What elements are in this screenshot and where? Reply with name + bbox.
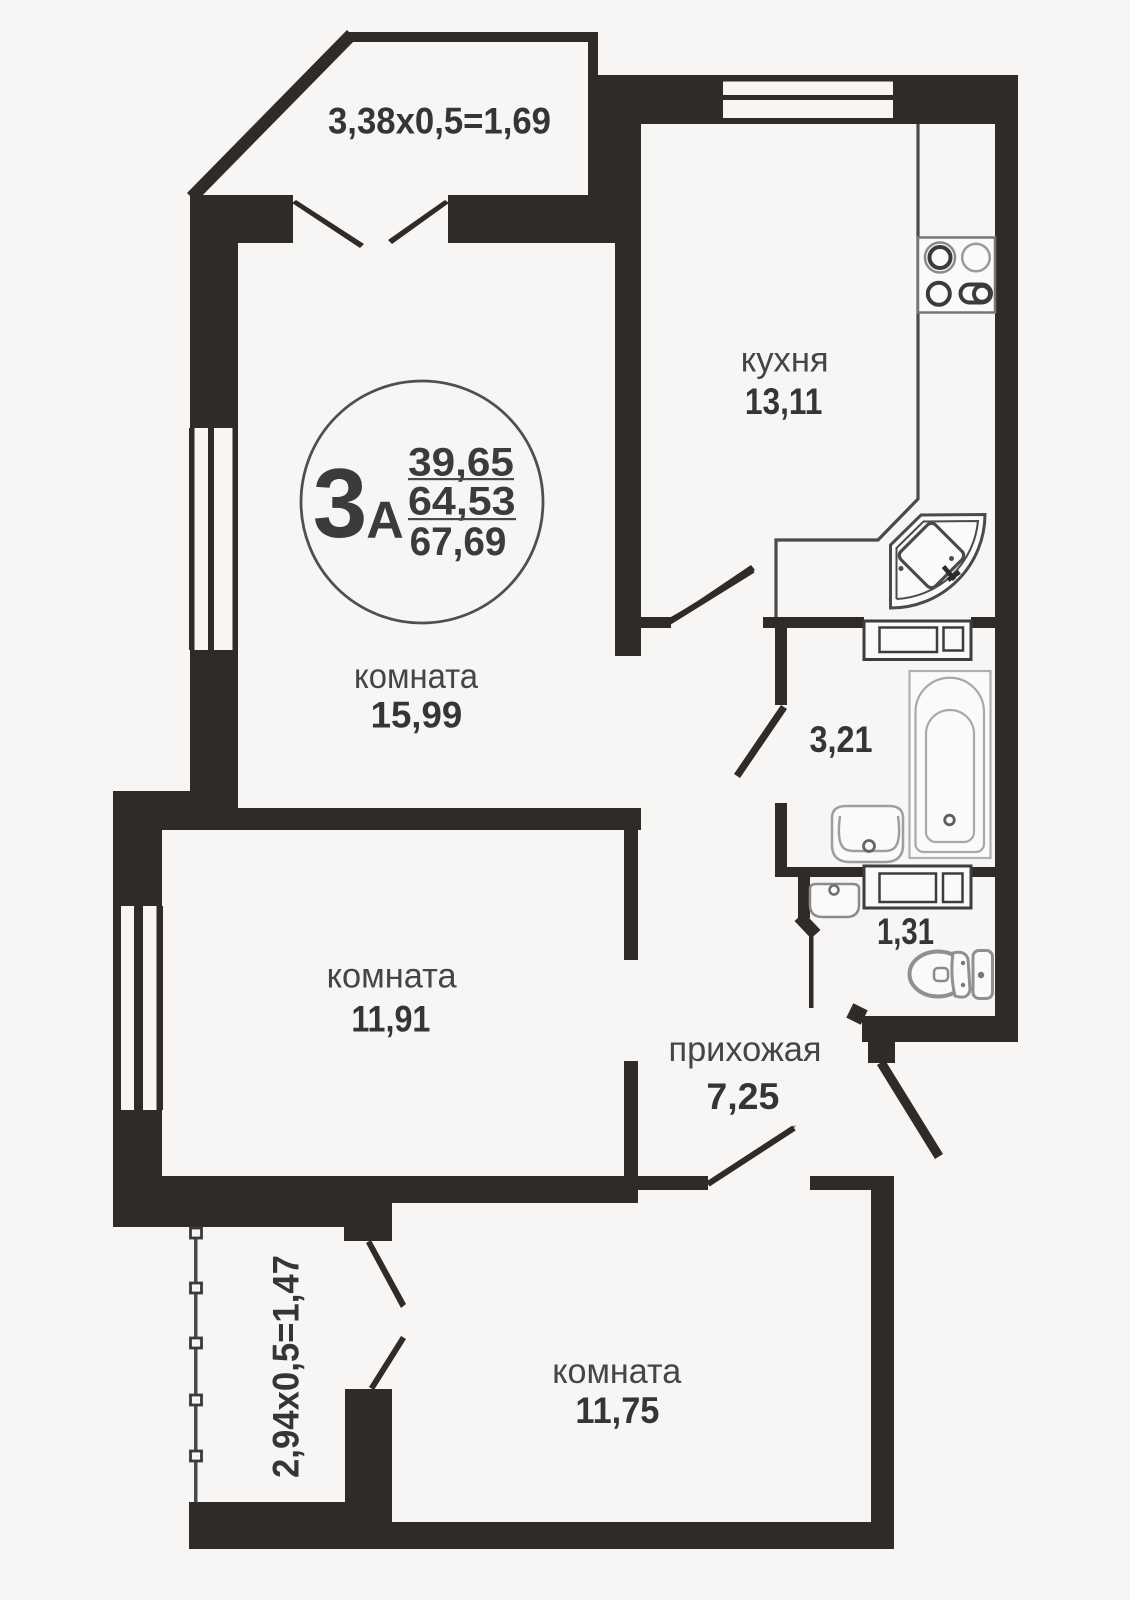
svg-text:11,75: 11,75 — [575, 1390, 659, 1431]
svg-text:64,53: 64,53 — [408, 480, 516, 524]
svg-text:3,38х0,5=1,69: 3,38х0,5=1,69 — [328, 101, 551, 142]
svg-text:2,94х0,5=1,47: 2,94х0,5=1,47 — [266, 1255, 307, 1478]
svg-text:комната: комната — [327, 957, 458, 996]
svg-text:15,99: 15,99 — [371, 695, 463, 736]
svg-text:кухня: кухня — [741, 341, 829, 380]
svg-text:39,65: 39,65 — [408, 441, 514, 485]
svg-text:3,21: 3,21 — [810, 719, 873, 760]
svg-text:комната: комната — [354, 657, 478, 696]
svg-text:комната: комната — [552, 1352, 682, 1391]
svg-text:67,69: 67,69 — [410, 520, 507, 564]
svg-text:7,25: 7,25 — [706, 1076, 779, 1117]
svg-text:3: 3 — [313, 448, 368, 558]
svg-text:13,11: 13,11 — [745, 381, 823, 422]
svg-text:А: А — [366, 492, 404, 550]
svg-text:1,31: 1,31 — [877, 911, 934, 952]
svg-text:11,91: 11,91 — [351, 999, 430, 1040]
svg-text:прихожая: прихожая — [669, 1030, 822, 1069]
